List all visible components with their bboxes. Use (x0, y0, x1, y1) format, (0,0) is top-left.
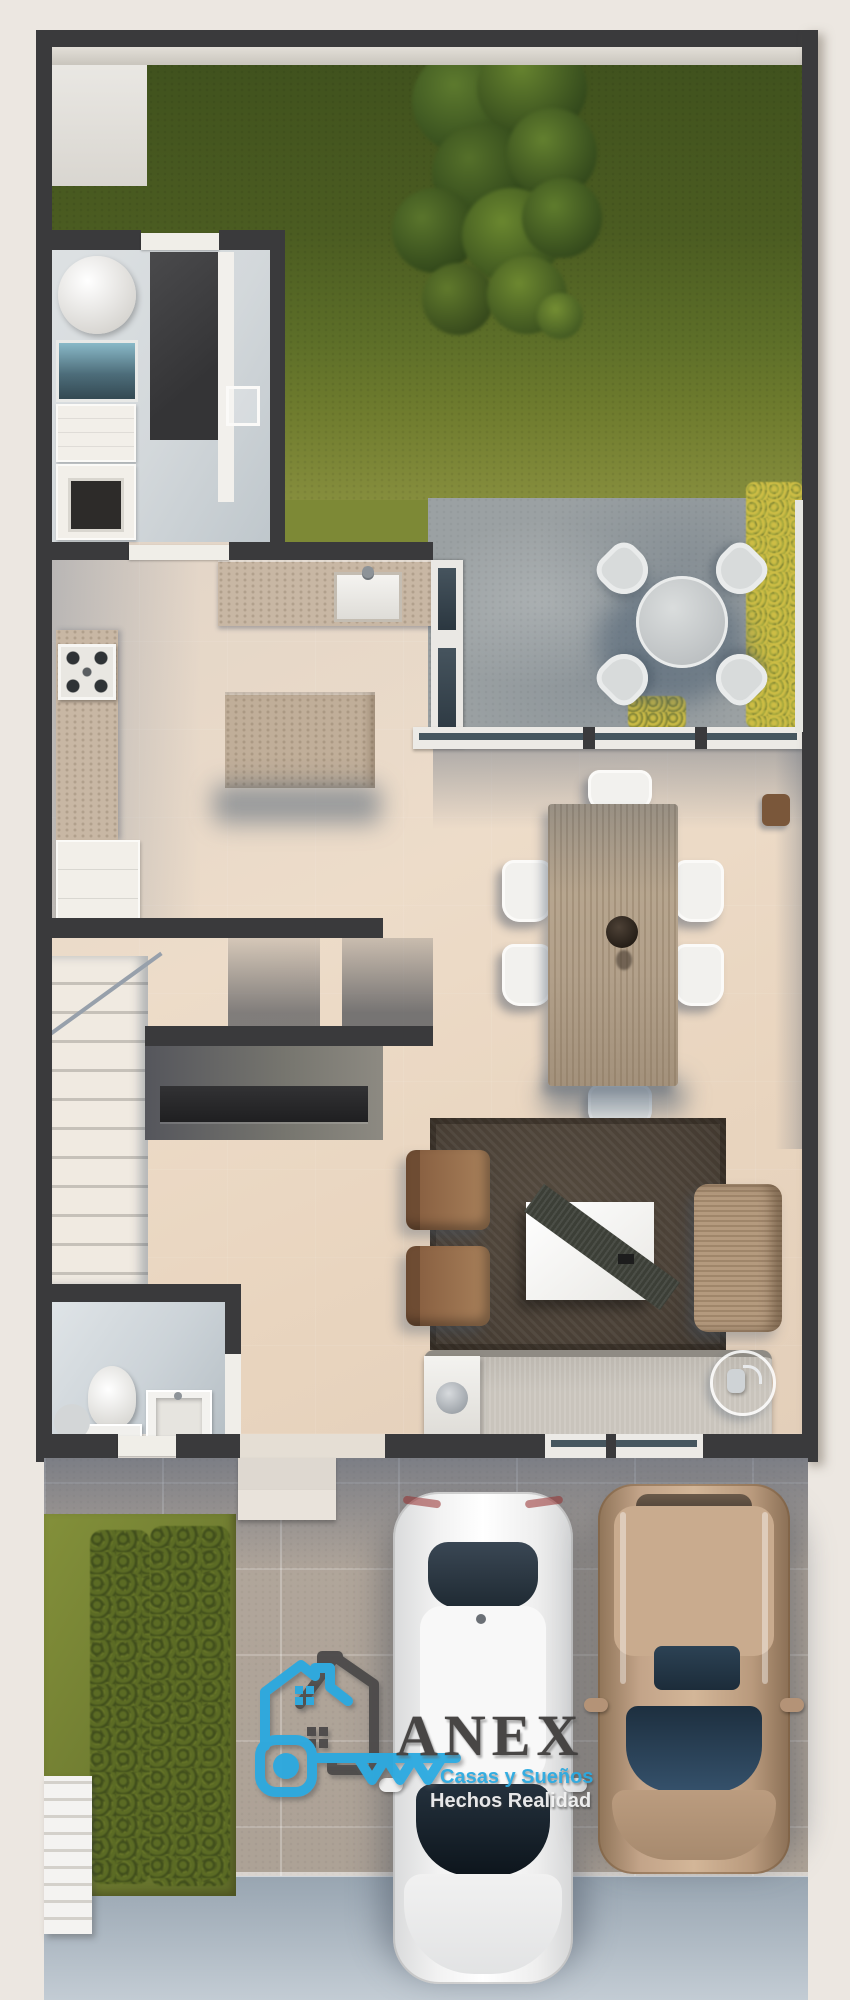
suv-roof-rail (762, 1512, 768, 1684)
door-mullion (606, 1434, 616, 1458)
white-sedan (393, 1492, 573, 1984)
suv-roof (614, 1506, 774, 1656)
dining-chair (502, 944, 552, 1006)
laundry-wall-cap (218, 252, 234, 502)
car-antenna (476, 1614, 486, 1624)
laundry-sink (56, 340, 138, 402)
entry-stoop-step (238, 1490, 336, 1520)
backyard-door-threshold (141, 233, 219, 250)
car-mirror (379, 1778, 403, 1792)
wood-stool (762, 794, 790, 826)
hedge-row (150, 1526, 230, 1886)
front-slider-glass (551, 1440, 697, 1447)
perimeter-wall-left (36, 30, 52, 1462)
washer-door (68, 478, 124, 532)
wall-top-cap (51, 47, 803, 65)
car-taillight (525, 1495, 564, 1508)
garden-bench (44, 1776, 92, 1934)
perimeter-wall-right (802, 30, 818, 1462)
table-lamp (436, 1382, 468, 1414)
kettle-handle (743, 1365, 762, 1384)
tree (392, 38, 607, 368)
door-mullion (695, 727, 707, 749)
round-side-table (710, 1350, 776, 1416)
bathroom-door-threshold (118, 1436, 176, 1456)
front-wall (176, 1434, 240, 1458)
leather-armchair (406, 1246, 490, 1326)
vanity-faucet (174, 1392, 182, 1400)
vanity-basin (156, 1398, 202, 1438)
front-wall (703, 1434, 818, 1458)
front-wall (36, 1434, 118, 1458)
front-wall (385, 1434, 545, 1458)
dining-chair (674, 944, 724, 1006)
car-taillight (403, 1495, 442, 1508)
car-rear-window (428, 1542, 538, 1608)
kitchen-cabinet (56, 840, 140, 926)
utility-closet (150, 252, 218, 440)
door-mullion (583, 727, 595, 749)
hall-wall (145, 1026, 433, 1046)
laundry-wall-bottom (51, 542, 129, 560)
bathroom-pony-wall (225, 1354, 241, 1434)
stove-cooktop (58, 644, 116, 700)
suv-windshield (626, 1706, 762, 1792)
wall-right-cap (795, 500, 803, 732)
entry-opening (240, 1434, 385, 1458)
perimeter-wall-top (36, 30, 818, 47)
bronze-suv (598, 1484, 790, 1874)
suv-sunroof (654, 1646, 740, 1690)
stair-break-line (47, 952, 163, 1038)
bathroom-wall-right (225, 1284, 241, 1354)
laundry-door-threshold (129, 545, 229, 560)
rattan-armchair (694, 1184, 782, 1332)
concrete-pad (51, 46, 147, 186)
dining-chair (674, 860, 724, 922)
bathroom-wall-top (51, 1284, 241, 1302)
kitchen-faucet (362, 566, 374, 578)
kitchen-window-wall (285, 542, 433, 560)
floor-plan-render: ANEX Casas y Sueños Hechos Realidad (0, 0, 850, 2000)
kitchen-wall-bottom (51, 918, 383, 938)
staircase (51, 956, 148, 1286)
island-shadow (213, 784, 381, 824)
kitchen-sink (334, 572, 402, 622)
car-hood (404, 1874, 562, 1974)
remote-control (618, 1254, 634, 1264)
hedge-row (90, 1530, 150, 1884)
kitchen-island (225, 692, 375, 788)
car-windshield (416, 1784, 550, 1876)
suv-mirror (780, 1698, 804, 1712)
hall-shadow-stripe (342, 938, 433, 1026)
glass-panel (438, 568, 456, 630)
sliding-door-glass (419, 733, 797, 740)
suv-hood (612, 1790, 776, 1860)
laundry-wall-bottom (229, 542, 285, 560)
patio-round-table (636, 576, 728, 668)
suv-roof-rail (620, 1512, 626, 1684)
coffee-table (526, 1202, 654, 1300)
car-mirror (563, 1778, 587, 1792)
table-centerpiece (606, 916, 638, 948)
table-centerpiece-small (616, 950, 632, 970)
dining-chair (502, 860, 552, 922)
laundry-wall-top (219, 230, 285, 250)
hall-shadow-stripe (228, 938, 320, 1026)
entry-stoop-step (238, 1458, 336, 1490)
dryer (56, 404, 136, 462)
suv-mirror (584, 1698, 608, 1712)
car-roof (420, 1606, 546, 1780)
toilet-bowl (88, 1366, 136, 1428)
laundry-wall-right (270, 250, 285, 542)
sofa-side-table (424, 1356, 480, 1438)
lawn-side-strip (285, 500, 428, 548)
laundry-wall-top (51, 230, 141, 250)
tv-console (160, 1086, 368, 1122)
leather-armchair (406, 1150, 490, 1230)
water-heater (58, 256, 136, 334)
wall-window-frame (226, 386, 260, 426)
